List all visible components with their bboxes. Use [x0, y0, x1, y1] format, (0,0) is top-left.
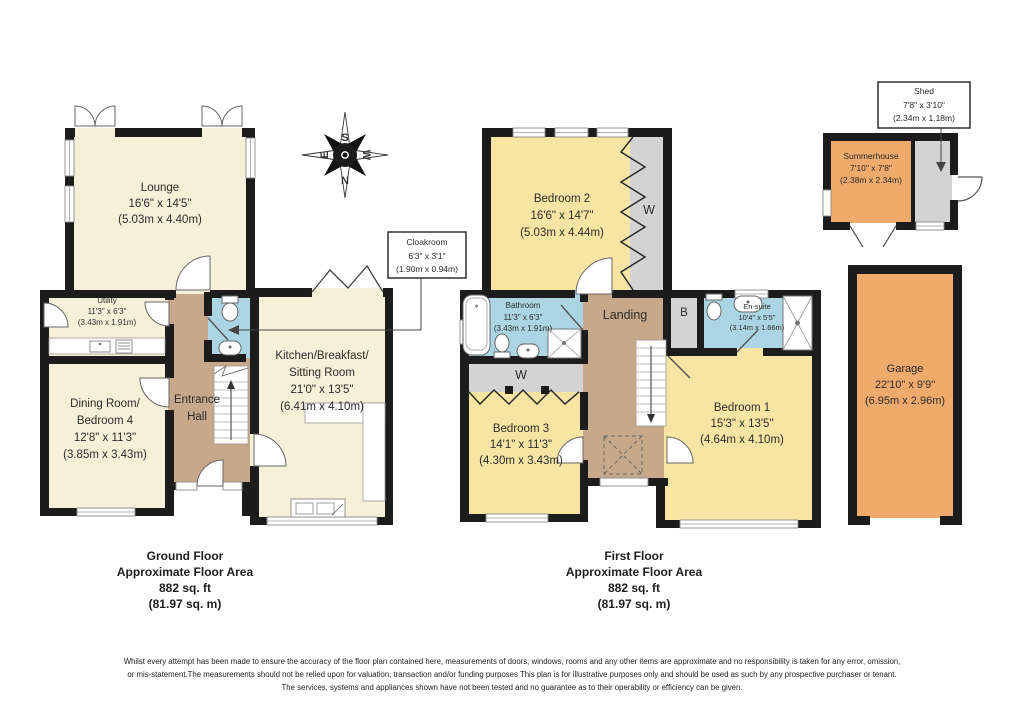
- compass-south-label: S: [341, 132, 348, 144]
- bedroom2-label: Bedroom 2 16'6" x 14'7" (5.03m x 4.44m): [520, 191, 604, 242]
- compass-rose-icon: S N E W: [302, 112, 388, 198]
- floorplan-page: S N E W Lounge 16'6" x 14'5" (5.03m x 4.…: [0, 0, 1024, 719]
- wardrobe-label-strip: W: [515, 368, 527, 382]
- shed-room: [912, 140, 952, 223]
- bedroom3-label: Bedroom 3 14'1" x 11'3" (4.30m x 3.43m): [479, 421, 563, 469]
- compass-north-label: N: [341, 175, 349, 187]
- cloakroom-toilet-icon: [222, 296, 238, 321]
- stairs-down-icon: [636, 340, 666, 426]
- first-floor-title: First Floor Approximate Floor Area 882 s…: [566, 548, 702, 612]
- bedroom1-label: Bedroom 1 15'3" x 13'5" (4.64m x 4.10m): [700, 400, 784, 448]
- bathroom-toilet-icon: [494, 334, 510, 358]
- compass-east-label: E: [319, 151, 331, 158]
- summerhouse-door-right: [883, 226, 896, 247]
- ensuite-shower-icon: [783, 296, 812, 350]
- ensuite-label: En-suite 10'4" x 5'5" (3.14m x 1.66m): [730, 302, 785, 334]
- bath-icon: [463, 295, 490, 355]
- cloakroom-sink-icon: [219, 341, 241, 355]
- utility-counter: [49, 338, 165, 354]
- boiler-label: B: [680, 307, 688, 319]
- utility-label: Utility 11'3" x 6'3" (3.43m x 1.91m): [78, 295, 136, 328]
- appliance-icon: [116, 340, 132, 353]
- garage-label: Garage 22'10" x 9'9" (6.95m x 2.96m): [865, 361, 945, 409]
- wardrobe-label-bedroom2: W: [643, 203, 655, 217]
- shed-callout-label: Shed 7'8" x 3'10" (2.34m x 1.18m): [893, 85, 955, 126]
- lounge-label: Lounge 16'6" x 14'5" (5.03m x 4.40m): [118, 180, 202, 228]
- kitchen-label: Kitchen/Breakfast/ Sitting Room 21'0" x …: [275, 348, 368, 416]
- french-door-right-leaf: [202, 106, 222, 126]
- dining-room-label: Dining Room/ Bedroom 4 12'8" x 11'3" (3.…: [63, 396, 147, 464]
- cloakroom-callout-label: Cloakroom 6'3" x 3'1" (1.90m x 0.94m): [396, 236, 458, 277]
- bathroom-label: Bathroom 11'3" x 6'3" (3.43m x 1.91m): [494, 300, 552, 335]
- entrance-hall-label: Entrance Hall: [174, 392, 220, 426]
- french-door-left-leaf: [75, 106, 95, 126]
- compass-west-label: W: [360, 150, 372, 161]
- bathroom-sink-icon: [517, 344, 539, 358]
- disclaimer-text: Whilst every attempt has been made to en…: [124, 655, 901, 694]
- utility-sink-icon: [90, 341, 110, 352]
- ensuite-toilet-icon: [706, 294, 722, 320]
- ground-floor-title: Ground Floor Approximate Floor Area 882 …: [117, 548, 253, 612]
- landing-label: Landing: [603, 308, 648, 322]
- summerhouse-label: Summerhouse 7'10" x 7'8" (2.38m x 2.34m): [840, 150, 902, 186]
- shed-door-arc: [958, 177, 982, 201]
- bathroom-shower-icon: [548, 329, 581, 358]
- outbuildings-plan: [823, 133, 982, 525]
- summerhouse-door-left: [850, 226, 863, 247]
